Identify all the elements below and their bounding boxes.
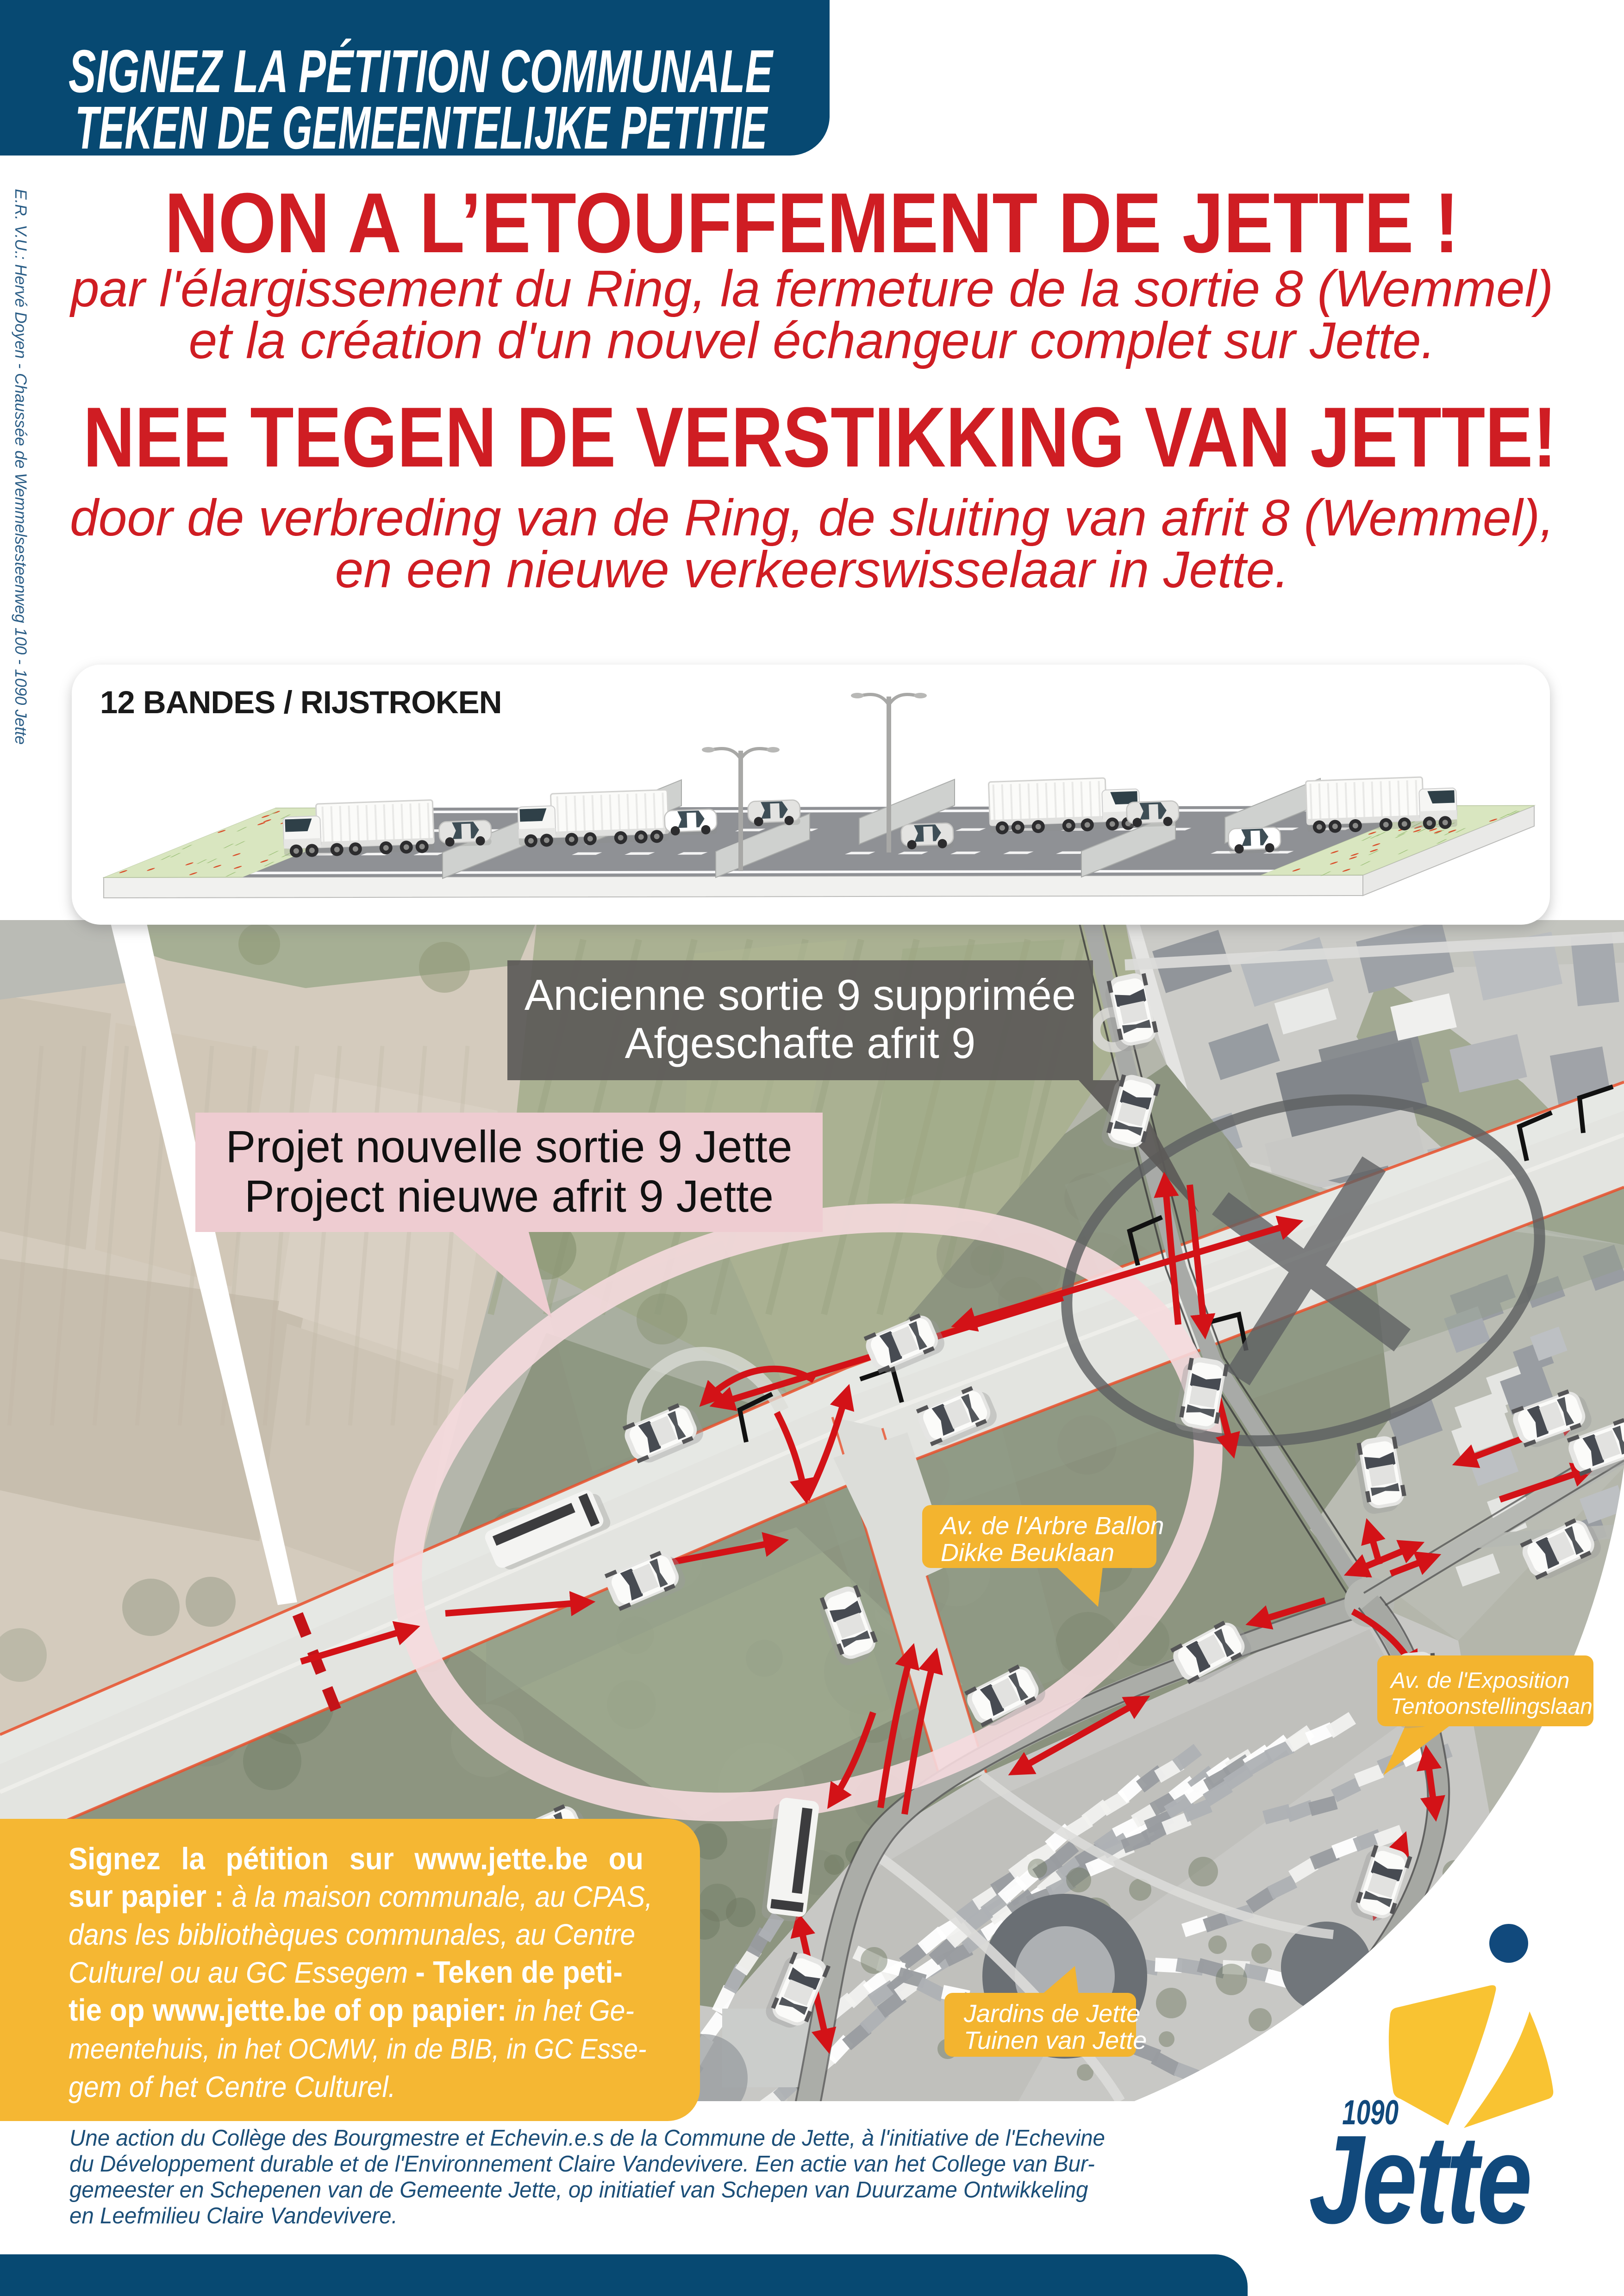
svg-text:Jette: Jette	[1309, 2109, 1530, 2250]
